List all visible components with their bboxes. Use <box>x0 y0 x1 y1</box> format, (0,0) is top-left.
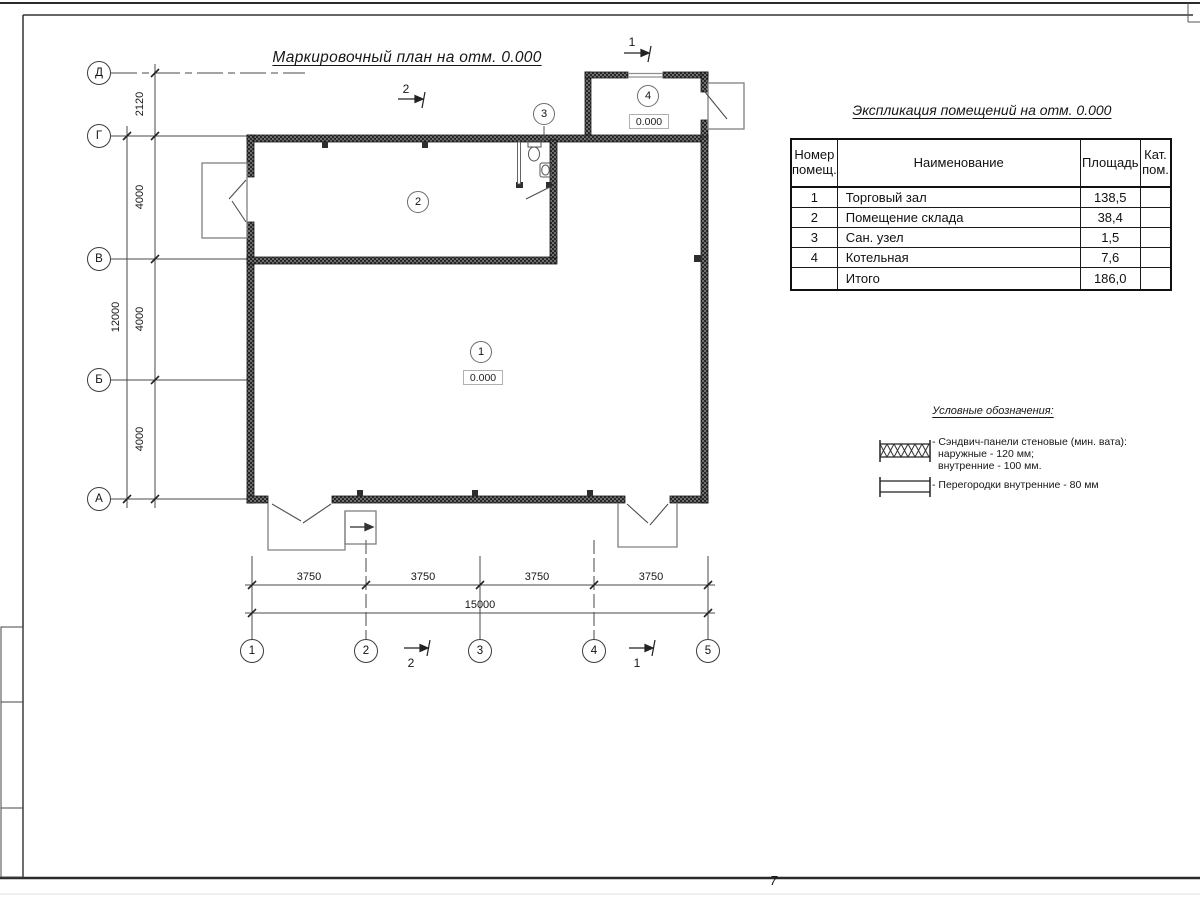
room-name-cell: Сан. узел <box>837 228 1080 248</box>
room-area-cell: 38,4 <box>1080 208 1140 228</box>
dim-4000-c: 4000 <box>134 427 146 451</box>
room-name-cell: Котельная <box>837 248 1080 268</box>
legend-sandwich-line3: внутренние - 100 мм. <box>938 460 1042 472</box>
room-bubble-2: 2 <box>407 191 429 213</box>
legend-sandwich-line1: - Сэндвич-панели стеновые (мин. вата): <box>932 436 1127 448</box>
col-header-name: Наименование <box>837 139 1080 187</box>
room-category-cell <box>1140 268 1171 290</box>
axis-bubble-1: 1 <box>240 639 264 663</box>
room-name-cell: Торговый зал <box>837 187 1080 208</box>
legend-partitions: - Перегородки внутренние - 80 мм <box>932 479 1099 491</box>
dim-4000-a: 4000 <box>134 185 146 209</box>
dim-4000-b: 4000 <box>134 307 146 331</box>
axis-bubble-B: Б <box>87 368 111 392</box>
table-header-row: Номер помещ. Наименование Площадь Кат. п… <box>791 139 1171 187</box>
axis-bubble-G: Г <box>87 124 111 148</box>
dim-3750-c: 3750 <box>525 571 549 583</box>
dim-12000: 12000 <box>110 302 122 333</box>
col-header-area: Площадь <box>1080 139 1140 187</box>
room-bubble-3: 3 <box>533 103 555 125</box>
axis-bubble-A: А <box>87 487 111 511</box>
drawing-sheet: Маркировочный план на отм. 0.000 Эксплик… <box>0 0 1200 900</box>
entrance-arrow <box>350 524 373 531</box>
elevation-mark-room1: 0.000 <box>463 370 503 385</box>
sanitary-fixtures <box>528 141 551 177</box>
room-number-cell <box>791 268 837 290</box>
porches <box>202 83 744 550</box>
dim-15000: 15000 <box>465 599 496 611</box>
axis-bubble-2: 2 <box>354 639 378 663</box>
room-area-cell: 1,5 <box>1080 228 1140 248</box>
room-category-cell <box>1140 208 1171 228</box>
room-number-cell: 4 <box>791 248 837 268</box>
section-label-1-bottom: 1 <box>634 656 641 670</box>
total-label-cell: Итого <box>837 268 1080 290</box>
room-number-cell: 1 <box>791 187 837 208</box>
walls <box>247 72 708 503</box>
legend-title: Условные обозначения: <box>932 405 1053 417</box>
room-category-cell <box>1140 248 1171 268</box>
dim-3750-d: 3750 <box>639 571 663 583</box>
axis-bubble-D: Д <box>87 61 111 85</box>
section-label-2-top: 2 <box>403 82 410 96</box>
room-bubble-4: 4 <box>637 85 659 107</box>
axis-bubble-5: 5 <box>696 639 720 663</box>
dimension-ticks <box>123 69 712 617</box>
room-area-cell: 7,6 <box>1080 248 1140 268</box>
table-title: Экспликация помещений на отм. 0.000 <box>853 102 1112 118</box>
wc-partition <box>518 142 521 184</box>
room-area-cell: 138,5 <box>1080 187 1140 208</box>
table-row: 4 Котельная 7,6 <box>791 248 1171 268</box>
room-category-cell <box>1140 228 1171 248</box>
table-row: 2 Помещение склада 38,4 <box>791 208 1171 228</box>
dim-2120: 2120 <box>134 92 146 116</box>
column-markers <box>322 142 701 496</box>
section-label-1-top: 1 <box>629 35 636 49</box>
partition-symbol <box>872 475 936 499</box>
window <box>628 74 663 78</box>
room-category-cell <box>1140 187 1171 208</box>
section-label-2-bottom: 2 <box>408 656 415 670</box>
page-number: 7 <box>770 873 777 888</box>
total-area-cell: 186,0 <box>1080 268 1140 290</box>
elevation-mark-room4: 0.000 <box>629 114 669 129</box>
axis-bubble-V: В <box>87 247 111 271</box>
room-explication-table: Номер помещ. Наименование Площадь Кат. п… <box>790 138 1172 291</box>
room-number-cell: 3 <box>791 228 837 248</box>
col-header-category: Кат. пом. <box>1140 139 1171 187</box>
sandwich-panel-symbol <box>872 438 936 464</box>
dim-3750-b: 3750 <box>411 571 435 583</box>
table-row: 1 Торговый зал 138,5 <box>791 187 1171 208</box>
axis-bubble-3: 3 <box>468 639 492 663</box>
plan-title: Маркировочный план на отм. 0.000 <box>272 49 541 67</box>
legend-sandwich-line2: наружные - 120 мм; <box>938 448 1034 460</box>
doors <box>229 92 727 525</box>
axis-lines <box>111 64 715 639</box>
table-row: 3 Сан. узел 1,5 <box>791 228 1171 248</box>
col-header-number: Номер помещ. <box>791 139 837 187</box>
axis-bubble-4: 4 <box>582 639 606 663</box>
room-number-cell: 2 <box>791 208 837 228</box>
room-name-cell: Помещение склада <box>837 208 1080 228</box>
room-bubble-1: 1 <box>470 341 492 363</box>
table-total-row: Итого 186,0 <box>791 268 1171 290</box>
dim-3750-a: 3750 <box>297 571 321 583</box>
